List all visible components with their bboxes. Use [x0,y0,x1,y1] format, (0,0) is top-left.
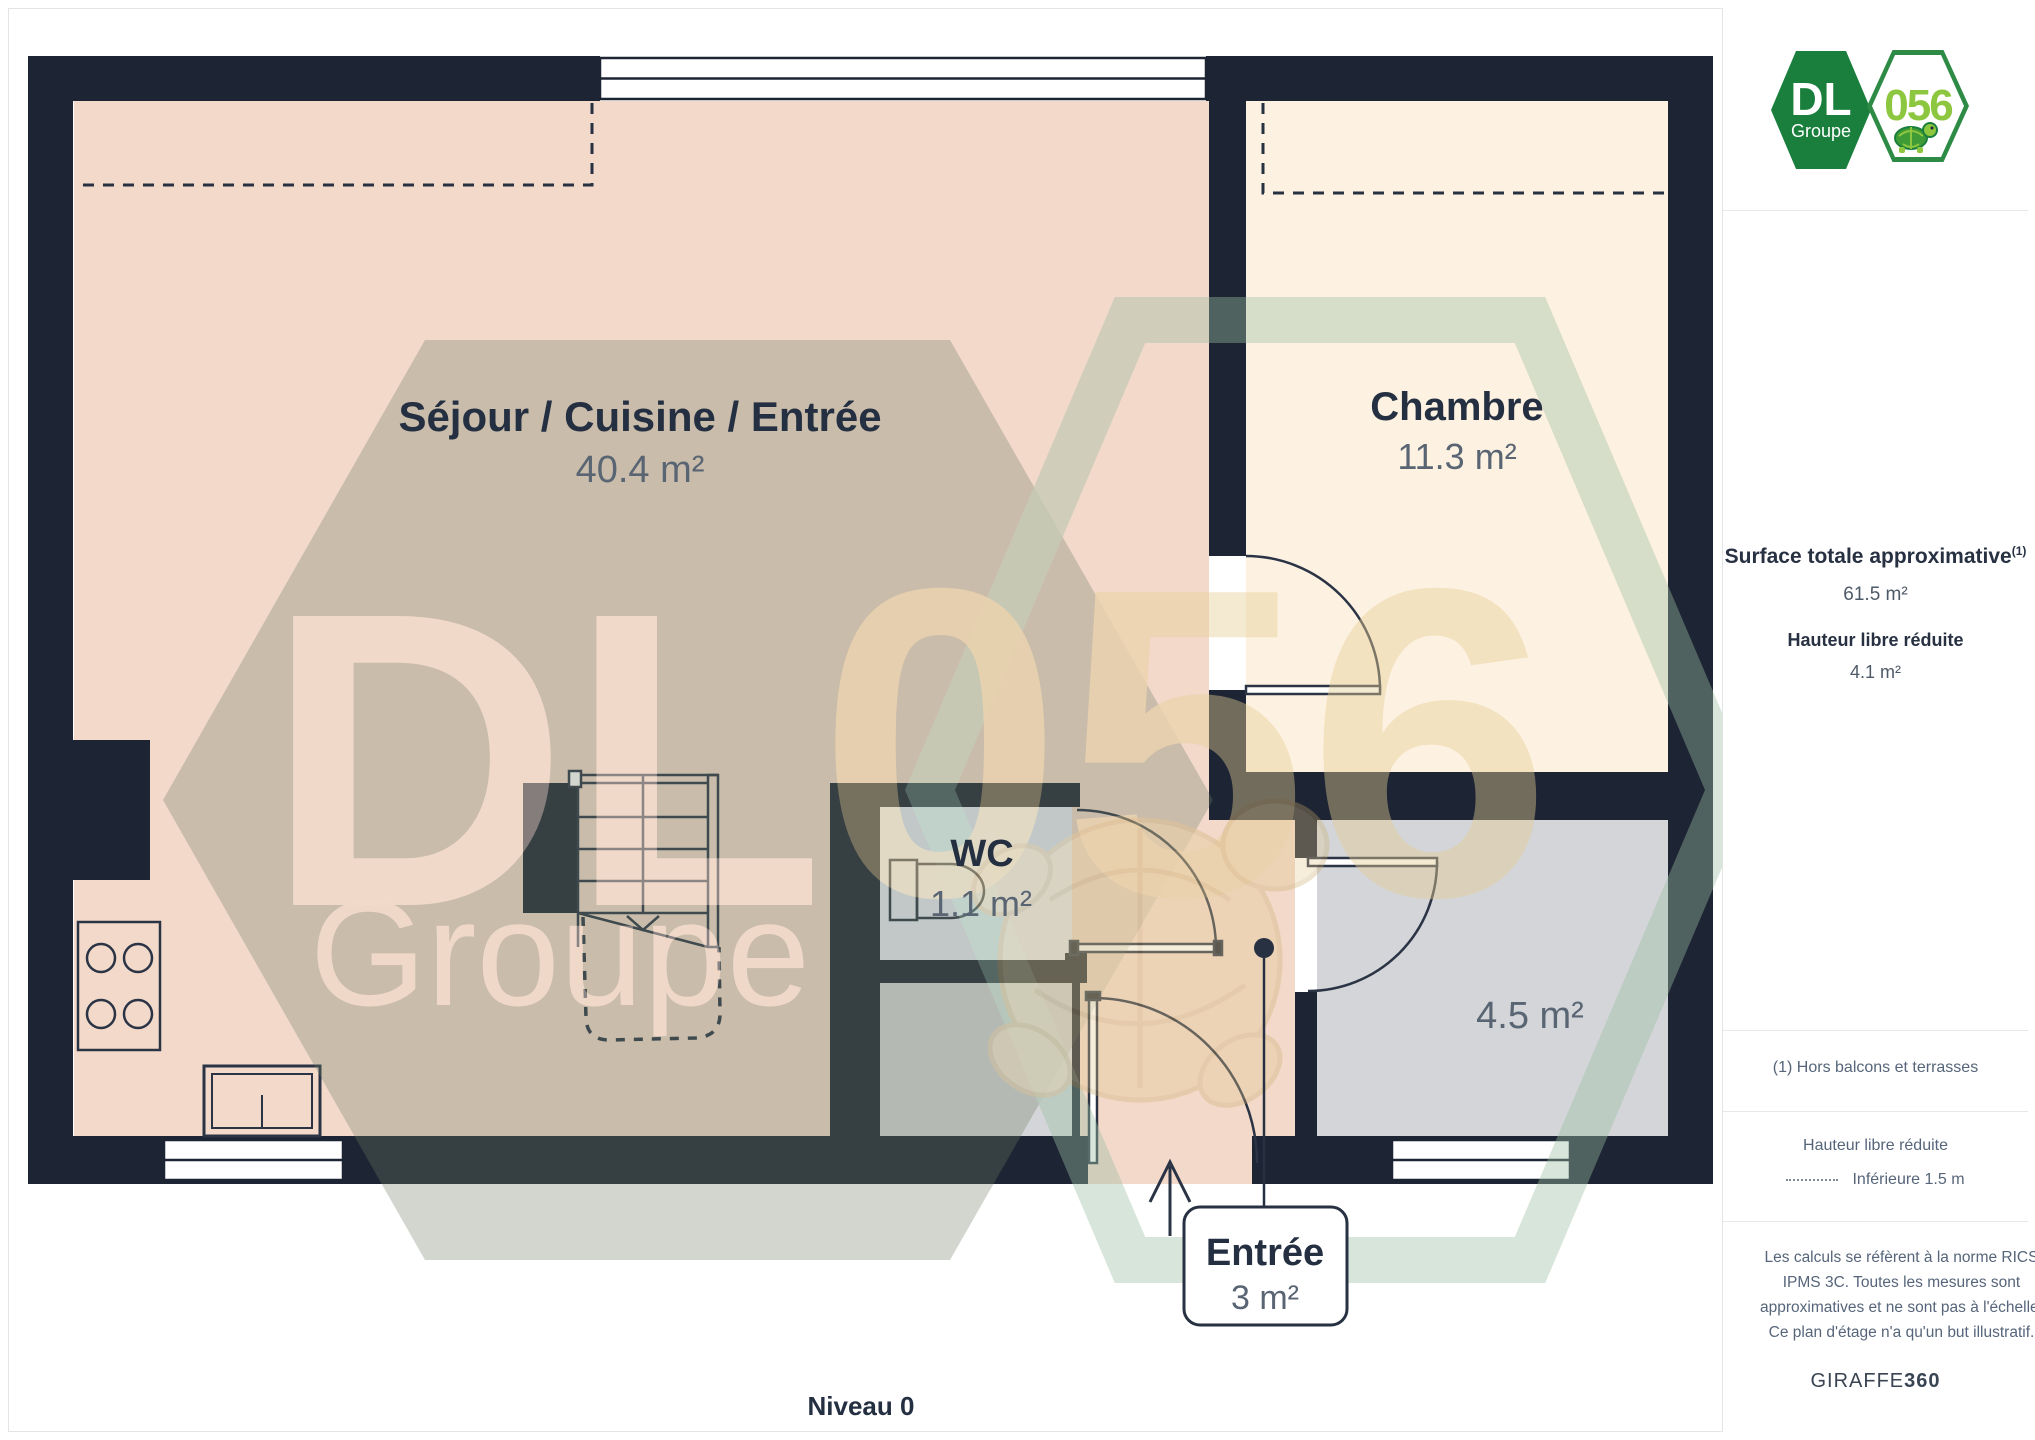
label-chambre-area: 11.3 m² [1397,436,1516,477]
giraffe360-brand: GIRAFFE360 [1723,1370,2028,1393]
label-storage-area: 4.5 m² [1476,995,1584,1037]
height-value: 4.1 m² [1723,662,2028,683]
logo-hexagon-dl: DL Groupe [1771,51,1871,169]
turtle-icon [1889,112,1941,156]
dl-groupe-logo: DL Groupe 056 [1771,50,1981,170]
wall-chimney-jog [73,740,150,880]
height-title: Hauteur libre réduite [1723,630,2028,651]
wall-storage-stub-bottom [1295,992,1317,1136]
watermark-groupe: Groupe [310,869,810,1037]
surface-value: 61.5 m² [1723,584,2028,606]
label-wc-area: 1.1 m² [930,883,1032,924]
label-entree-area: 3 m² [1231,1279,1299,1317]
watermark-turtle [960,801,1327,1120]
label-sejour-name: Séjour / Cuisine / Entrée [398,393,881,440]
sidebar-divider-4 [1723,1221,2028,1222]
floor-plan: DL Groupe 056 Séjour / Cuisine / Entrée … [0,0,1722,1440]
label-sejour-area: 40.4 m² [576,449,705,491]
wall-left [28,56,73,1184]
floor-plan-page: DL Groupe 056 Séjour / Cuisine / Entrée … [0,0,2035,1440]
sidebar-divider-3 [1723,1111,2028,1112]
label-level: Niveau 0 [808,1391,915,1421]
label-wc-name: WC [950,833,1013,875]
logo-groupe-text: Groupe [1791,121,1851,142]
sidebar: DL Groupe 056 Surface totale approximati… [1722,8,2028,1432]
logo-dl-text: DL [1790,79,1851,119]
sidebar-divider-1 [1723,210,2028,211]
dashed-legend-icon [1786,1179,1838,1181]
entree-marker-dot [1254,938,1274,958]
label-entree-name: Entrée [1206,1232,1324,1274]
surface-title: Surface totale approximative(1) [1723,544,2028,569]
legend-title: Hauteur libre réduite [1723,1137,2028,1155]
legend-row: Inférieure 1.5 m [1723,1171,2028,1189]
wall-top-left [28,56,600,101]
window-top [600,58,1206,99]
wall-top-right [1206,56,1713,101]
window-bottom-left [164,1140,343,1180]
footnote: (1) Hors balcons et terrasses [1723,1059,2028,1077]
disclaimer: Les calculs se réfèrent à la norme RICS … [1723,1245,2035,1345]
sidebar-divider-2 [1723,1030,2028,1031]
label-chambre-name: Chambre [1370,385,1543,429]
